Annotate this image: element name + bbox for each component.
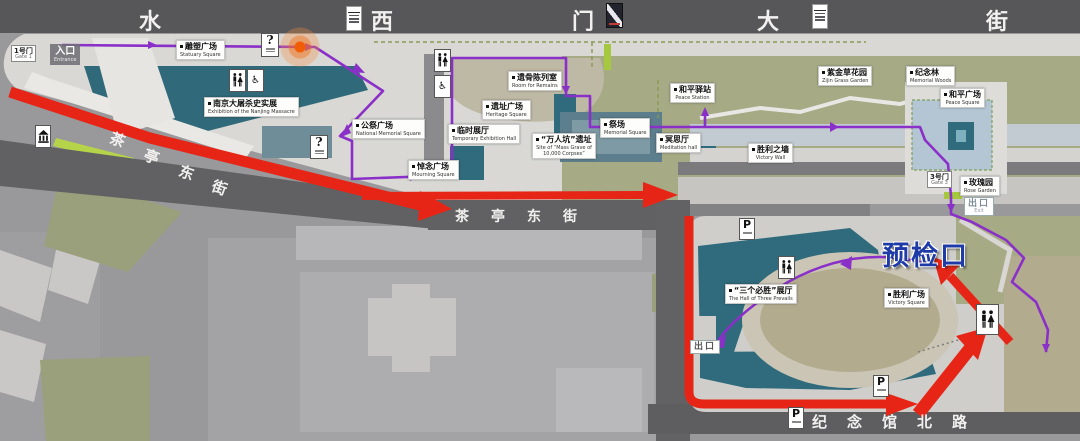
label-memorial-square: 祭场 Memorial Square [600, 118, 650, 138]
label-memorial-woods: 纪念林 Memorial Woods [906, 66, 955, 86]
street-side-buildings [690, 204, 870, 216]
victory-wall-structure [678, 162, 1080, 175]
street-char: 亭 [491, 206, 505, 226]
street-char: 北 [917, 411, 932, 432]
parking-icon: P [739, 218, 755, 240]
street-char: 街 [563, 206, 577, 226]
accessible-toilet-icon: ♿ [434, 75, 451, 98]
toilet-icon [229, 69, 246, 92]
street-char: 茶 [455, 206, 469, 226]
street-char: 念 [847, 411, 862, 432]
street-char: 大 [757, 4, 779, 36]
red-arrow-mid [362, 195, 645, 196]
gate3-label: 3号门 Gate 3 [927, 171, 952, 188]
west-wing-building [424, 54, 444, 174]
street-char: 水 [139, 4, 161, 36]
label-remains-room: 遗骨陈列室 Room for Remains [508, 71, 562, 91]
gate1-label: 1号门 Gate 1 [11, 45, 36, 62]
parking-icon: P [873, 375, 889, 397]
bus-stop-icon [812, 4, 828, 29]
label-national-memorial-square: 公祭广场 National Memorial Square [352, 119, 425, 139]
label-sculpture-square: 雕塑广场 Statuary Square [176, 40, 225, 60]
label-heritage-square: 遗址广场 Heritage Square [482, 100, 531, 120]
label-victory-wall: 胜利之墙 Victory Wall [748, 143, 793, 163]
exit-southwest-label: 出口 [690, 340, 720, 354]
label-peace-station: 和平驿站 Peace Station [670, 83, 715, 103]
street-char: 街 [986, 4, 1008, 36]
street-char: 门 [572, 4, 594, 36]
gate2-bar [604, 44, 611, 70]
shuiximen-street [0, 0, 1080, 33]
label-victory-square: 胜利广场 Victory Square [884, 288, 929, 308]
label-zijin-garden: 紫金草花园 Zijin Grass Garden [818, 66, 872, 86]
toilet-icon [434, 49, 451, 72]
bus-stop-icon [346, 6, 362, 31]
label-three-prevails-hall: “三个必胜”展厅 The Hall of Three Prevails [725, 284, 797, 304]
information-icon: ? [261, 33, 279, 57]
information-icon: ? [310, 135, 328, 159]
toilet-icon [778, 256, 795, 279]
accessible-toilet-icon: ♿ [247, 69, 264, 92]
label-rose-garden: 玫瑰园 Rose Garden [960, 176, 1000, 196]
label-mourning-square: 悼念广场 Mourning Square [408, 160, 459, 180]
south-east-ground [1004, 256, 1080, 412]
parking-icon: P [788, 407, 804, 429]
current-location-marker [278, 25, 322, 69]
peace-statue [956, 130, 966, 142]
precheck-entrance-label: 预检口 [882, 234, 969, 273]
entrance-label: 入口 Entrance [50, 44, 80, 65]
street-char: 路 [952, 411, 967, 432]
label-massacre-exhibition: 南京大屠杀史实展 Exhibition of the Nanjing Massa… [204, 97, 299, 117]
street-char: 纪 [812, 411, 827, 432]
street-char: 馆 [882, 411, 897, 432]
street-char: 西 [371, 4, 393, 36]
monument-icon [35, 125, 51, 148]
exit-northeast-label: 出口 Exit [964, 197, 994, 216]
label-meditation-hall: 冥思厅 Meditation hall [656, 133, 701, 153]
label-peace-square: 和平广场 Peace Square [940, 88, 985, 108]
metro-station-icon [606, 3, 623, 28]
street-char: 东 [527, 206, 541, 226]
toilet-icon [976, 304, 999, 335]
hall-notch [694, 316, 716, 342]
label-mass-grave: “万人坑”遗址 Site of “Mass Grave of 10,000 Co… [532, 133, 596, 159]
label-temporary-hall: 临时展厅 Temporary Exhibition Hall [448, 124, 520, 144]
memorial-park-map: 水 西 门 大 街 茶 亭 东 街 茶 亭 东 街 纪 念 馆 北 路 雕塑广场… [0, 0, 1080, 441]
south-walk [678, 177, 1080, 204]
